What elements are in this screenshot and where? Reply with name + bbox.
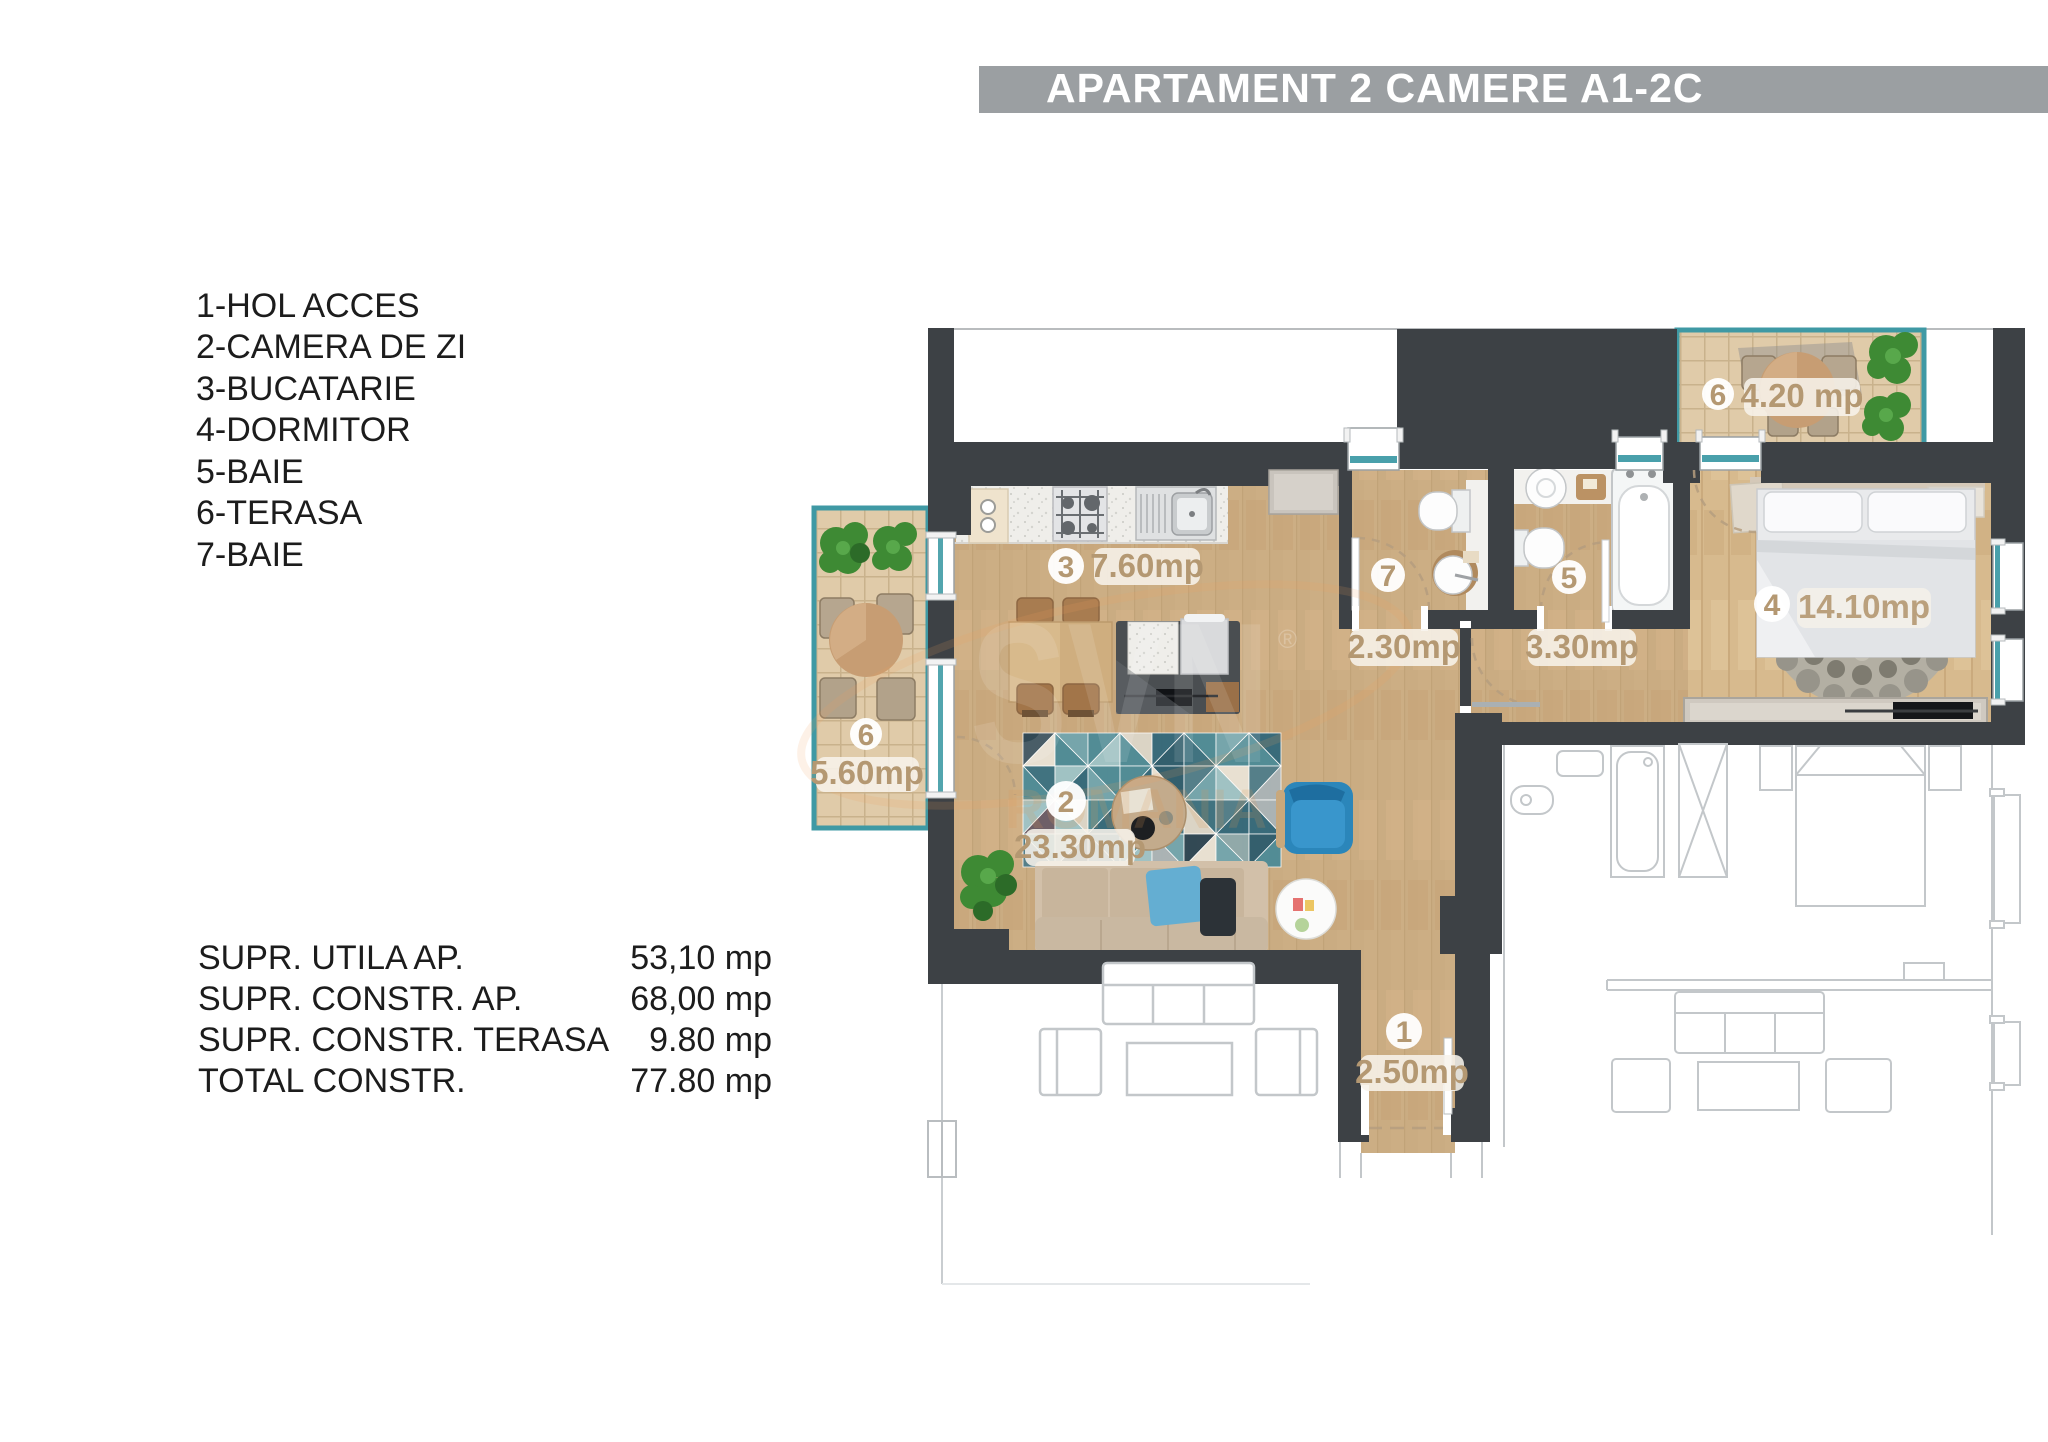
svg-text:®: ®	[1278, 624, 1297, 654]
svg-text:6: 6	[1710, 379, 1727, 412]
svg-text:77.80 mp: 77.80 mp	[630, 1062, 772, 1100]
svg-text:APARTAMENT 2 CAMERE A1-2C: APARTAMENT 2 CAMERE A1-2C	[1046, 65, 1704, 111]
svg-text:7-BAIE: 7-BAIE	[196, 536, 304, 574]
svg-text:1-HOL ACCES: 1-HOL ACCES	[196, 287, 420, 325]
svg-text:68,00 mp: 68,00 mp	[630, 980, 772, 1018]
svg-text:7.60mp: 7.60mp	[1090, 547, 1204, 584]
svg-text:TOTAL CONSTR.: TOTAL CONSTR.	[198, 1062, 466, 1100]
svg-text:2-CAMERA DE ZI: 2-CAMERA DE ZI	[196, 328, 466, 366]
svg-text:14.10mp: 14.10mp	[1798, 588, 1930, 625]
svg-text:4-DORMITOR: 4-DORMITOR	[196, 411, 411, 449]
svg-text:6-TERASA: 6-TERASA	[196, 494, 363, 532]
svg-text:SUPR. CONSTR. TERASA: SUPR. CONSTR. TERASA	[198, 1021, 610, 1059]
svg-text:2: 2	[1058, 786, 1075, 819]
svg-text:2.50mp: 2.50mp	[1355, 1053, 1469, 1090]
svg-text:4.20 mp: 4.20 mp	[1741, 377, 1864, 414]
svg-text:1: 1	[1396, 1016, 1413, 1049]
svg-text:7: 7	[1380, 560, 1397, 593]
svg-text:53,10 mp: 53,10 mp	[630, 939, 772, 977]
svg-text:9.80 mp: 9.80 mp	[649, 1021, 772, 1059]
svg-text:2.30mp: 2.30mp	[1347, 628, 1461, 665]
svg-text:5.60mp: 5.60mp	[810, 754, 924, 791]
svg-text:5-BAIE: 5-BAIE	[196, 453, 304, 491]
svg-text:5: 5	[1561, 562, 1578, 595]
svg-text:3: 3	[1058, 551, 1075, 584]
svg-text:SUPR. UTILA AP.: SUPR. UTILA AP.	[198, 939, 464, 977]
svg-text:SVN: SVN	[970, 582, 1270, 805]
svg-text:3.30mp: 3.30mp	[1525, 628, 1639, 665]
svg-text:6: 6	[858, 719, 875, 752]
svg-text:SUPR. CONSTR. AP.: SUPR. CONSTR. AP.	[198, 980, 522, 1018]
svg-text:3-BUCATARIE: 3-BUCATARIE	[196, 370, 416, 408]
svg-text:23.30mp: 23.30mp	[1014, 828, 1146, 865]
svg-text:4: 4	[1764, 589, 1781, 622]
